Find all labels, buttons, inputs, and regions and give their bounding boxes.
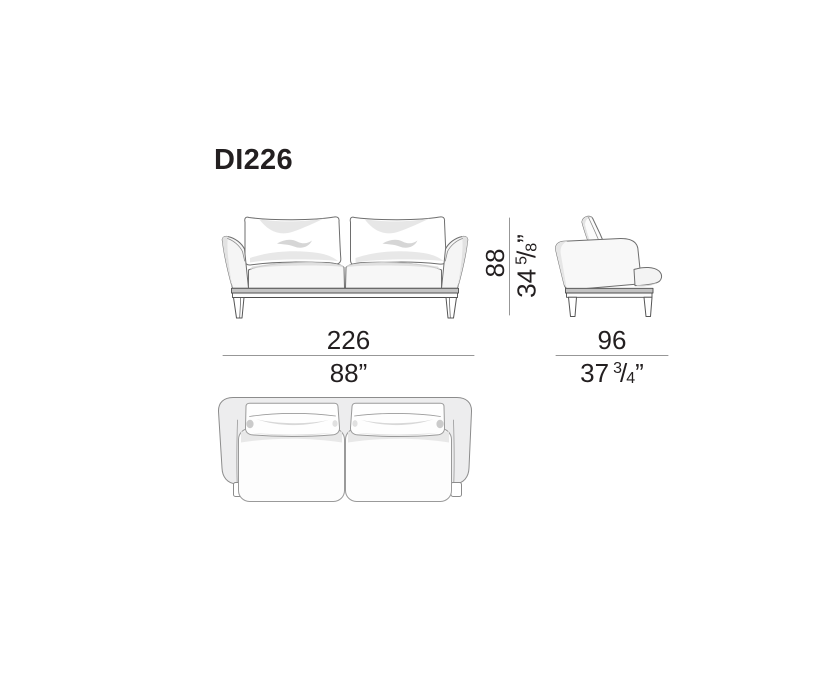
top-back-pillow — [245, 403, 339, 436]
height-in-slash: / — [512, 251, 542, 258]
depth-in-denominator: 4 — [626, 370, 635, 387]
depth-in-whole: 37 — [580, 358, 609, 388]
side-legs — [569, 297, 653, 316]
depth-inches-label: 373/4” — [545, 360, 679, 387]
height-inches-label: 345/8” — [514, 234, 541, 298]
top-seat-cushion — [239, 429, 345, 502]
base-rail — [232, 288, 459, 297]
height-in-denominator: 8 — [524, 243, 541, 252]
height-in-whole: 34 — [512, 269, 542, 298]
front-legs — [234, 298, 457, 319]
height-in-unit: ” — [512, 234, 542, 243]
width-inches-label: 88” — [223, 360, 474, 386]
side-arm-panel — [556, 239, 641, 290]
side-base-rail — [566, 288, 654, 297]
back-cushion — [245, 217, 341, 265]
height-cm-label: 88 — [482, 249, 508, 278]
front-view — [222, 217, 467, 318]
seat-cushion — [249, 262, 345, 288]
width-cm-label: 226 — [223, 327, 474, 353]
side-seat-tip — [634, 268, 662, 287]
depth-in-unit: ” — [635, 358, 644, 388]
side-view — [556, 216, 662, 316]
depth-cm-label: 96 — [556, 327, 668, 353]
top-view — [218, 398, 471, 502]
spec-sheet: DI226 — [0, 0, 840, 679]
